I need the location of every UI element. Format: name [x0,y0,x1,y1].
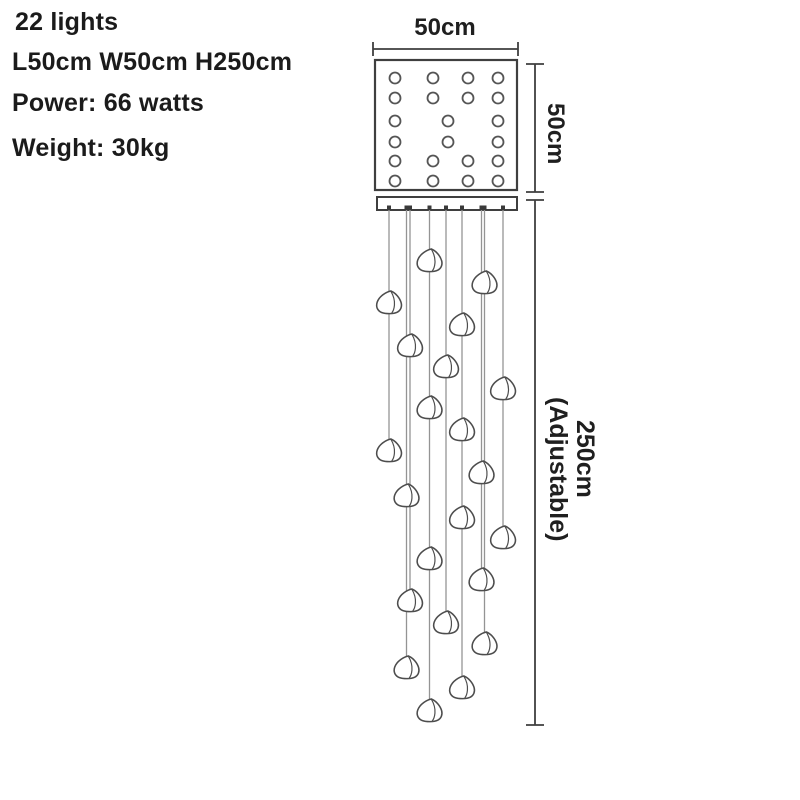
cable-attachment-dot [387,206,391,211]
crystal-pendant [469,461,494,484]
cable-attachment-dot [483,206,487,211]
width-dimension-line [373,42,518,56]
cable-attachment-dot [405,206,409,211]
crystal-pendant [417,547,442,570]
crystal-pendant [450,418,475,441]
cable-attachment-dot [408,206,412,211]
plate-hole [463,93,474,104]
plate-hole [493,73,504,84]
plate-hole [493,137,504,148]
plate-hole [493,176,504,187]
cable-attachment-dot [460,206,464,211]
width-dimension-label: 50cm [370,14,520,42]
crystal-body [398,334,423,357]
plate-hole [390,116,401,127]
cable-attachment-dot [501,206,505,211]
plate-hole [428,156,439,167]
plate-hole [390,93,401,104]
plate-hole [390,137,401,148]
crystal-pendant [434,611,459,634]
crystal-body [450,313,475,336]
plate-hole [428,93,439,104]
crystal-body [417,396,442,419]
crystal-pendant [417,249,442,272]
product-spec-image: 22 lights L50cm W50cm H250cm Power: 66 w… [0,0,800,800]
drop-length-label: 250cm [570,420,599,498]
crystal-body [434,355,459,378]
plate-hole [390,73,401,84]
crystal-body [394,484,419,507]
drop-dimension-line [526,200,544,725]
plate-hole [443,137,454,148]
plate-hole [443,116,454,127]
crystal-body [394,656,419,679]
crystal-body [377,439,402,462]
crystal-pendant [398,334,423,357]
crystal-body [417,547,442,570]
plate-hole [463,156,474,167]
crystal-body [417,249,442,272]
crystal-pendant [472,632,497,655]
crystal-pendant [434,355,459,378]
crystal-body [472,632,497,655]
chandelier-diagram [0,0,800,800]
crystal-body [450,418,475,441]
crystal-body [417,699,442,722]
cable-attachment-dot [444,206,448,211]
crystal-body [469,568,494,591]
crystal-pendant [417,396,442,419]
crystal-body [434,611,459,634]
crystal-body [469,461,494,484]
crystal-pendant [450,506,475,529]
crystal-pendant [377,439,402,462]
plate-hole [493,156,504,167]
crystal-pendant [398,589,423,612]
plate-hole [463,73,474,84]
crystal-body [450,506,475,529]
crystal-body [450,676,475,699]
plate-hole [463,176,474,187]
crystal-body [398,589,423,612]
crystal-pendant [394,656,419,679]
crystal-pendant [377,291,402,314]
crystal-pendant [417,699,442,722]
cable-attachment-dot [428,206,432,211]
crystal-body [377,291,402,314]
crystal-pendant [491,526,516,549]
plate-hole [390,156,401,167]
crystal-pendant [394,484,419,507]
crystal-pendant [491,377,516,400]
crystal-body [491,526,516,549]
plate-hole [390,176,401,187]
plate-hole [493,93,504,104]
crystal-pendant [469,568,494,591]
plate-hole [493,116,504,127]
drop-adjustable-label: (Adjustable) [543,397,572,541]
crystal-pendant [450,313,475,336]
crystal-pendant [472,271,497,294]
crystal-pendant [450,676,475,699]
crystal-body [491,377,516,400]
plate-height-dimension-label: 50cm [541,103,569,164]
plate-hole [428,73,439,84]
crystal-body [472,271,497,294]
plate-hole [428,176,439,187]
